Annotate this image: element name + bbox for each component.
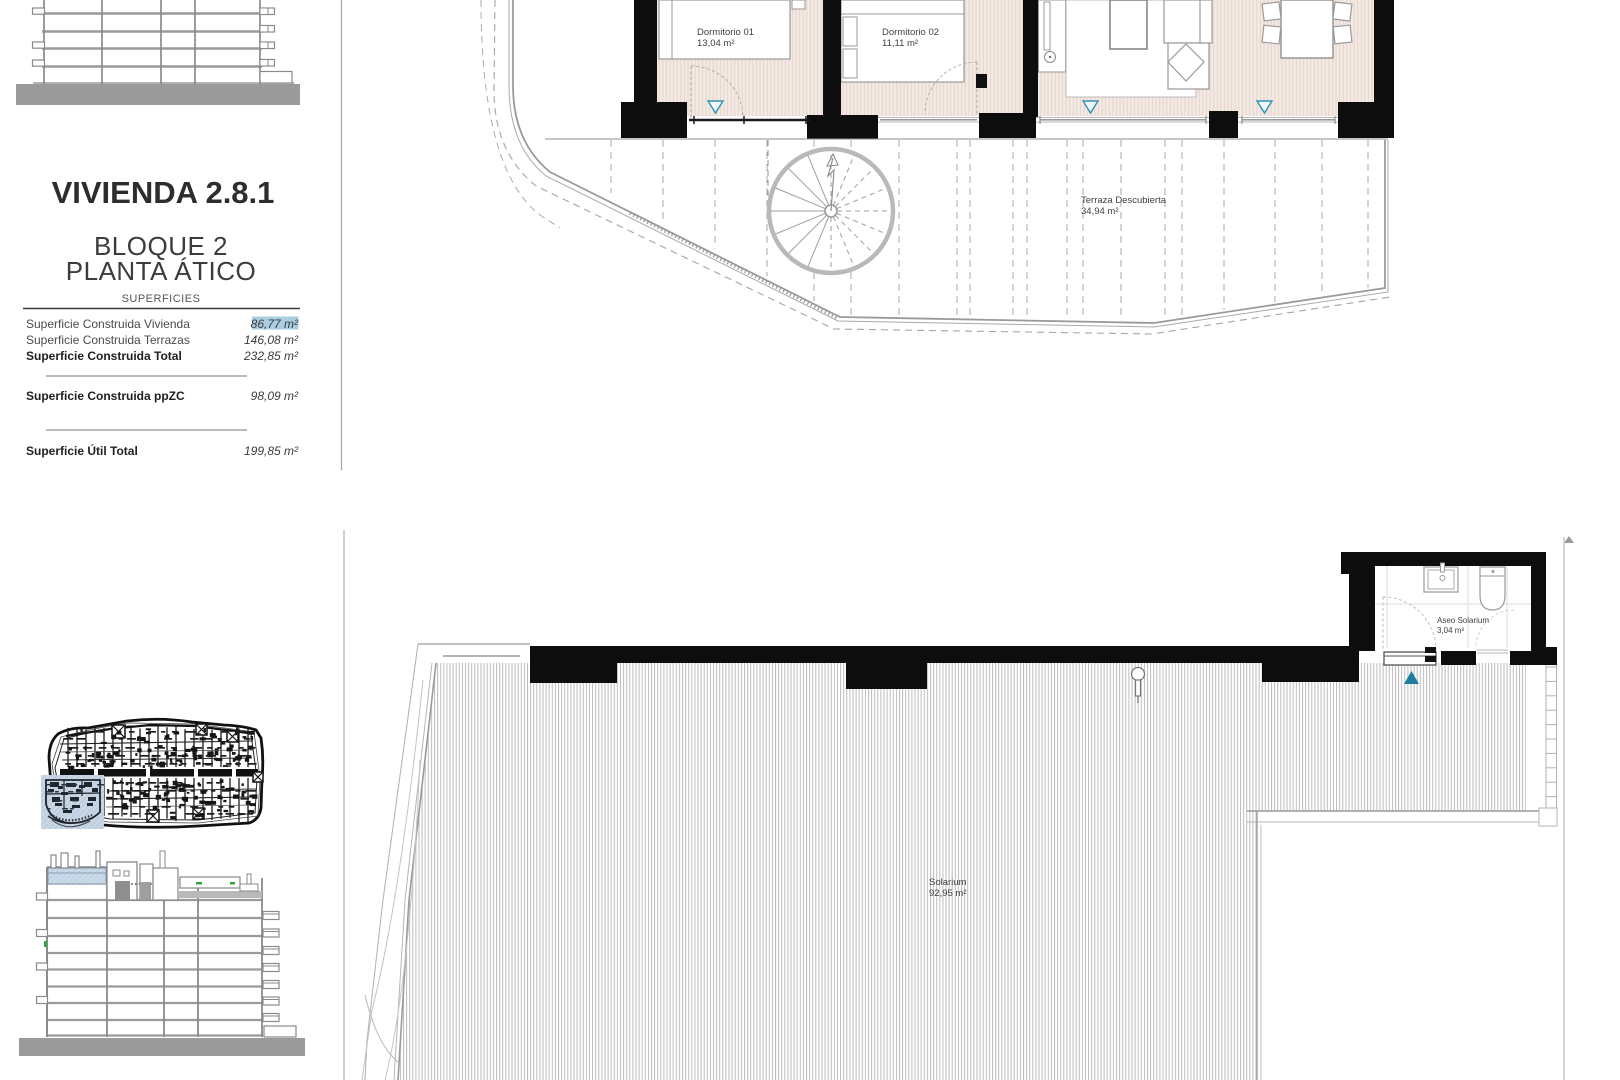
- svg-text:34,94 m²: 34,94 m²: [1081, 206, 1119, 217]
- svg-text:Solarium: Solarium: [929, 877, 967, 888]
- svg-text:Terraza Descubierta: Terraza Descubierta: [1081, 195, 1167, 206]
- svg-text:199,85 m²: 199,85 m²: [244, 444, 299, 458]
- svg-text:Superficie Útil Total: Superficie Útil Total: [26, 443, 138, 458]
- svg-text:3,04 m²: 3,04 m²: [1437, 626, 1464, 635]
- svg-text:Superficie Construida Terrazas: Superficie Construida Terrazas: [26, 333, 190, 347]
- svg-text:Superficie Construida ppZC: Superficie Construida ppZC: [26, 389, 185, 403]
- svg-text:Dormitorio 02: Dormitorio 02: [882, 27, 939, 38]
- svg-text:Superficie Construida Total: Superficie Construida Total: [26, 349, 182, 363]
- svg-text:Dormitorio 01: Dormitorio 01: [697, 27, 754, 38]
- svg-text:232,85 m²: 232,85 m²: [243, 349, 299, 363]
- svg-text:SUPERFICIES: SUPERFICIES: [122, 293, 201, 305]
- svg-text:86,77 m²: 86,77 m²: [251, 317, 299, 331]
- svg-text:13,04 m²: 13,04 m²: [697, 38, 735, 49]
- svg-text:11,11 m²: 11,11 m²: [882, 38, 918, 49]
- svg-text:92,95 m²: 92,95 m²: [929, 888, 967, 899]
- svg-text:PLANTA ÁTICO: PLANTA ÁTICO: [66, 256, 256, 286]
- svg-text:146,08 m²: 146,08 m²: [244, 333, 299, 347]
- svg-text:VIVIENDA 2.8.1: VIVIENDA 2.8.1: [52, 175, 275, 210]
- svg-text:Aseo Solarium: Aseo Solarium: [1437, 616, 1489, 625]
- svg-text:98,09 m²: 98,09 m²: [251, 389, 299, 403]
- svg-text:Superficie Construida Vivienda: Superficie Construida Vivienda: [26, 317, 190, 331]
